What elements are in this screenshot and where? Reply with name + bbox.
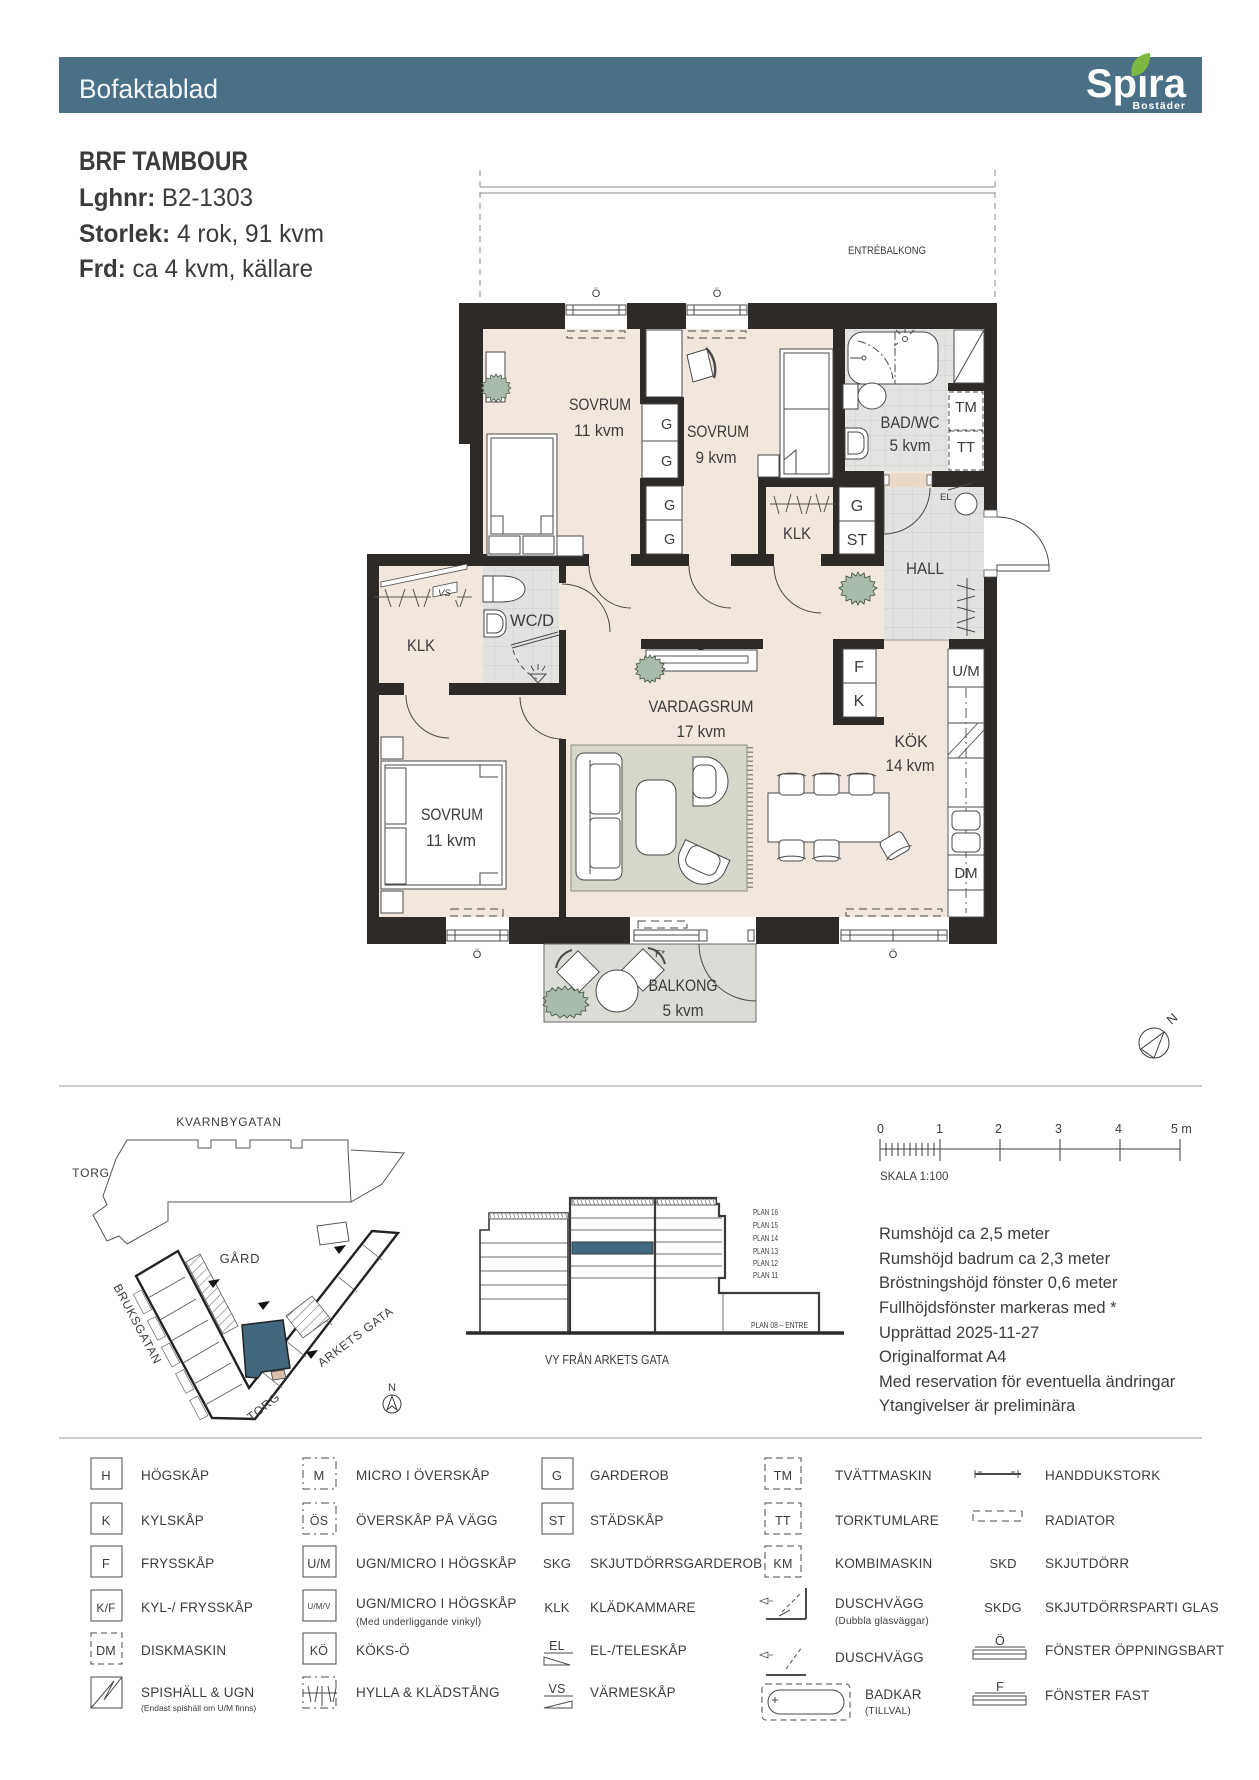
svg-text:PLAN 11: PLAN 11 <box>753 1271 778 1280</box>
svg-text:KLK: KLK <box>407 637 435 655</box>
svg-text:VS: VS <box>548 1682 565 1696</box>
svg-text:Originalformat A4: Originalformat A4 <box>879 1348 1006 1366</box>
svg-text:STÄDSKÅP: STÄDSKÅP <box>590 1513 664 1528</box>
svg-text:DUSCHVÄGG: DUSCHVÄGG <box>835 1596 924 1611</box>
svg-text:DM: DM <box>954 865 977 882</box>
svg-text:HANDDUKSTORK: HANDDUKSTORK <box>1045 1468 1160 1483</box>
svg-text:VY FRÅN ARKETS GATA: VY FRÅN ARKETS GATA <box>545 1352 669 1367</box>
svg-text:PLAN 16: PLAN 16 <box>753 1208 778 1217</box>
svg-text:Bostäder: Bostäder <box>1132 100 1186 112</box>
svg-text:FRYSSKÅP: FRYSSKÅP <box>141 1556 214 1571</box>
svg-text:9 kvm: 9 kvm <box>696 449 737 467</box>
svg-text:N: N <box>1163 1010 1180 1027</box>
svg-text:KVARNBYGATAN: KVARNBYGATAN <box>176 1115 282 1129</box>
svg-text:SOVRUM: SOVRUM <box>421 806 483 824</box>
svg-text:SKD: SKD <box>989 1556 1016 1571</box>
svg-text:Bröstningshöjd fönster 0,6 met: Bröstningshöjd fönster 0,6 meter <box>879 1274 1118 1292</box>
svg-text:Ö: Ö <box>592 288 601 300</box>
svg-text:5 kvm: 5 kvm <box>890 437 931 455</box>
svg-text:Frd: ca 4 kvm, källare: Frd: ca 4 kvm, källare <box>79 255 313 283</box>
svg-text:KYL-/ FRYSSKÅP: KYL-/ FRYSSKÅP <box>141 1600 253 1615</box>
svg-text:F: F <box>854 659 864 676</box>
svg-text:ÖS: ÖS <box>310 1514 328 1528</box>
svg-text:4: 4 <box>1115 1122 1122 1136</box>
svg-text:N: N <box>388 1382 396 1394</box>
svg-text:TT: TT <box>775 1514 791 1528</box>
svg-text:PLAN 15: PLAN 15 <box>753 1221 778 1230</box>
svg-text:VÄRMESKÅP: VÄRMESKÅP <box>590 1685 676 1700</box>
svg-text:BRF TAMBOUR: BRF TAMBOUR <box>79 146 248 176</box>
svg-text:17 kvm: 17 kvm <box>677 723 726 741</box>
svg-text:PLAN 08 – ENTRE: PLAN 08 – ENTRE <box>751 1321 808 1330</box>
svg-text:WC/D: WC/D <box>510 612 554 630</box>
svg-text:(Dubbla glasväggar): (Dubbla glasväggar) <box>835 1616 929 1627</box>
svg-text:KÖ: KÖ <box>310 1644 329 1658</box>
svg-text:SKDG: SKDG <box>984 1600 1022 1615</box>
svg-text:Ö: Ö <box>889 949 898 961</box>
svg-text:G: G <box>664 498 675 514</box>
svg-text:KYLSKÅP: KYLSKÅP <box>141 1513 204 1528</box>
svg-text:3: 3 <box>1055 1122 1062 1136</box>
svg-text:TM: TM <box>955 399 977 416</box>
svg-text:BALKONG: BALKONG <box>649 977 718 995</box>
svg-text:5 kvm: 5 kvm <box>663 1002 704 1020</box>
svg-text:HYLLA & KLÄDSTÅNG: HYLLA & KLÄDSTÅNG <box>356 1685 500 1700</box>
svg-text:Rumshöjd ca 2,5 meter: Rumshöjd ca 2,5 meter <box>879 1225 1050 1243</box>
svg-text:TORKTUMLARE: TORKTUMLARE <box>835 1513 939 1528</box>
svg-text:(Endast spishäll om U/M finns): (Endast spishäll om U/M finns) <box>141 1703 256 1713</box>
svg-text:SOVRUM: SOVRUM <box>569 396 631 414</box>
svg-text:ST: ST <box>847 532 868 549</box>
svg-text:11 kvm: 11 kvm <box>426 832 476 850</box>
svg-text:EL: EL <box>549 1639 565 1653</box>
svg-text:Ö: Ö <box>995 1634 1005 1648</box>
svg-text:HÖGSKÅP: HÖGSKÅP <box>141 1468 209 1483</box>
svg-text:Fullhöjdsfönster markeras med: Fullhöjdsfönster markeras med * <box>879 1299 1117 1317</box>
svg-text:K: K <box>102 1513 111 1528</box>
svg-text:MICRO I ÖVERSKÅP: MICRO I ÖVERSKÅP <box>356 1468 490 1483</box>
svg-text:Ö: Ö <box>713 288 722 300</box>
svg-text:KÖKS-Ö: KÖKS-Ö <box>356 1643 410 1658</box>
svg-text:KLK: KLK <box>544 1600 569 1615</box>
svg-text:KLÄDKAMMARE: KLÄDKAMMARE <box>590 1600 696 1615</box>
svg-text:RADIATOR: RADIATOR <box>1045 1513 1115 1528</box>
svg-text:F: F <box>102 1556 110 1571</box>
svg-text:SKALA 1:100: SKALA 1:100 <box>880 1171 948 1183</box>
svg-text:SKJUTDÖRRSPARTI GLAS: SKJUTDÖRRSPARTI GLAS <box>1045 1600 1219 1615</box>
svg-text:G: G <box>661 417 672 433</box>
svg-text:Med reservation för eventuella: Med reservation för eventuella ändringar <box>879 1373 1176 1391</box>
svg-text:KLK: KLK <box>783 525 811 543</box>
svg-text:GARDEROB: GARDEROB <box>590 1468 669 1483</box>
svg-text:G: G <box>552 1468 562 1483</box>
svg-text:(TILLVAL): (TILLVAL) <box>865 1706 911 1717</box>
svg-text:GÅRD: GÅRD <box>220 1251 261 1266</box>
svg-text:G: G <box>664 532 675 548</box>
svg-text:PLAN 12: PLAN 12 <box>753 1259 778 1268</box>
svg-text:FÖNSTER FAST: FÖNSTER FAST <box>1045 1688 1149 1703</box>
svg-text:UGN/MICRO I HÖGSKÅP: UGN/MICRO I HÖGSKÅP <box>356 1596 517 1611</box>
svg-text:PLAN 13: PLAN 13 <box>753 1247 778 1256</box>
svg-text:DISKMASKIN: DISKMASKIN <box>141 1643 226 1658</box>
svg-text:FÖNSTER ÖPPNINGSBART: FÖNSTER ÖPPNINGSBART <box>1045 1643 1224 1658</box>
svg-text:TM: TM <box>774 1469 792 1483</box>
svg-text:SOVRUM: SOVRUM <box>687 423 749 441</box>
svg-text:ENTRÉBALKONG: ENTRÉBALKONG <box>848 244 926 257</box>
svg-text:BAD/WC: BAD/WC <box>881 414 940 432</box>
svg-text:KOMBIMASKIN: KOMBIMASKIN <box>835 1556 932 1571</box>
svg-text:TORG: TORG <box>72 1166 110 1180</box>
svg-text:ST: ST <box>549 1514 566 1528</box>
svg-text:DM: DM <box>96 1644 116 1658</box>
svg-text:11 kvm: 11 kvm <box>574 422 624 440</box>
svg-text:Bofaktablad: Bofaktablad <box>79 74 218 104</box>
svg-text:KM: KM <box>773 1557 792 1571</box>
svg-text:1: 1 <box>936 1122 943 1136</box>
svg-text:KÖK: KÖK <box>895 733 928 751</box>
svg-text:U/M/V: U/M/V <box>307 1602 331 1611</box>
svg-text:F: F <box>996 1680 1004 1694</box>
svg-text:(Med underliggande vinkyl): (Med underliggande vinkyl) <box>356 1617 481 1628</box>
svg-text:TT: TT <box>957 439 975 456</box>
svg-text:SPISHÄLL & UGN: SPISHÄLL & UGN <box>141 1685 254 1700</box>
svg-text:14 kvm: 14 kvm <box>886 757 935 775</box>
svg-text:Lghnr: B2-1303: Lghnr: B2-1303 <box>79 184 253 212</box>
svg-text:SKJUTDÖRR: SKJUTDÖRR <box>1045 1556 1129 1571</box>
svg-text:SKJUTDÖRRSGARDEROB: SKJUTDÖRRSGARDEROB <box>590 1556 762 1571</box>
svg-text:2: 2 <box>995 1122 1002 1136</box>
svg-text:Ytangivelser är preliminära: Ytangivelser är preliminära <box>879 1397 1076 1415</box>
svg-text:0: 0 <box>877 1122 884 1136</box>
svg-text:VS: VS <box>438 588 451 599</box>
svg-text:U/M: U/M <box>952 663 980 680</box>
svg-text:Upprättad 2025-11-27: Upprättad 2025-11-27 <box>879 1324 1039 1342</box>
svg-text:EL: EL <box>940 492 952 503</box>
svg-text:DUSCHVÄGG: DUSCHVÄGG <box>835 1650 924 1665</box>
svg-text:K: K <box>854 693 865 710</box>
svg-text:K/F: K/F <box>96 1601 115 1615</box>
svg-text:M: M <box>313 1468 324 1483</box>
svg-text:SKG: SKG <box>543 1556 571 1571</box>
svg-text:PLAN 14: PLAN 14 <box>753 1234 778 1243</box>
svg-text:TVÄTTMASKIN: TVÄTTMASKIN <box>835 1468 932 1483</box>
svg-text:Storlek: 4 rok, 91 kvm: Storlek: 4 rok, 91 kvm <box>79 220 324 248</box>
svg-text:G: G <box>661 454 672 470</box>
svg-text:G: G <box>851 498 863 515</box>
svg-text:ÖVERSKÅP PÅ VÄGG: ÖVERSKÅP PÅ VÄGG <box>356 1513 498 1528</box>
svg-text:Rumshöjd badrum ca 2,3 meter: Rumshöjd badrum ca 2,3 meter <box>879 1250 1111 1268</box>
svg-text:BADKAR: BADKAR <box>865 1687 922 1702</box>
svg-text:EL-/TELESKÅP: EL-/TELESKÅP <box>590 1643 687 1658</box>
svg-text:H: H <box>101 1468 111 1483</box>
svg-text:HALL: HALL <box>906 560 944 578</box>
svg-text:Ö: Ö <box>473 949 482 961</box>
svg-text:UGN/MICRO I HÖGSKÅP: UGN/MICRO I HÖGSKÅP <box>356 1556 517 1571</box>
svg-text:VARDAGSRUM: VARDAGSRUM <box>649 698 754 716</box>
svg-text:5 m: 5 m <box>1171 1122 1192 1136</box>
svg-text:U/M: U/M <box>307 1557 331 1571</box>
